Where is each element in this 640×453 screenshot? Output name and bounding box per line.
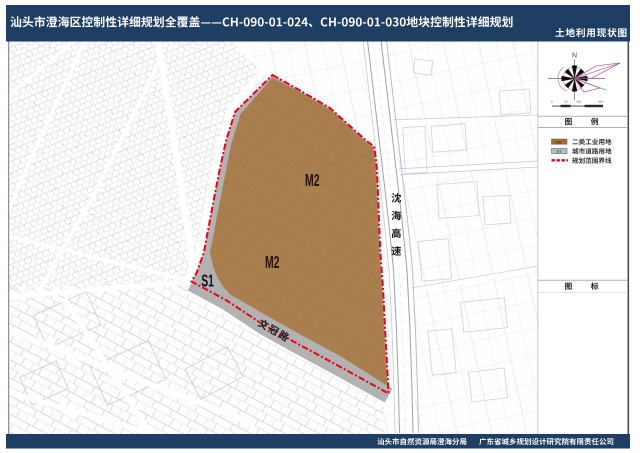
svg-text:0: 0: [551, 100, 553, 104]
svg-text:300: 300: [598, 100, 604, 104]
svg-text:S1: S1: [201, 272, 214, 292]
svg-text:M2: M2: [265, 253, 280, 273]
svg-text:N: N: [572, 53, 577, 60]
svg-text:090-01-024: 090-01-024: [300, 189, 326, 195]
svg-text:150: 150: [576, 100, 582, 104]
svg-text:S1: S1: [557, 149, 563, 154]
svg-text:75: 75: [564, 100, 568, 104]
svg-text:M2: M2: [556, 139, 562, 144]
